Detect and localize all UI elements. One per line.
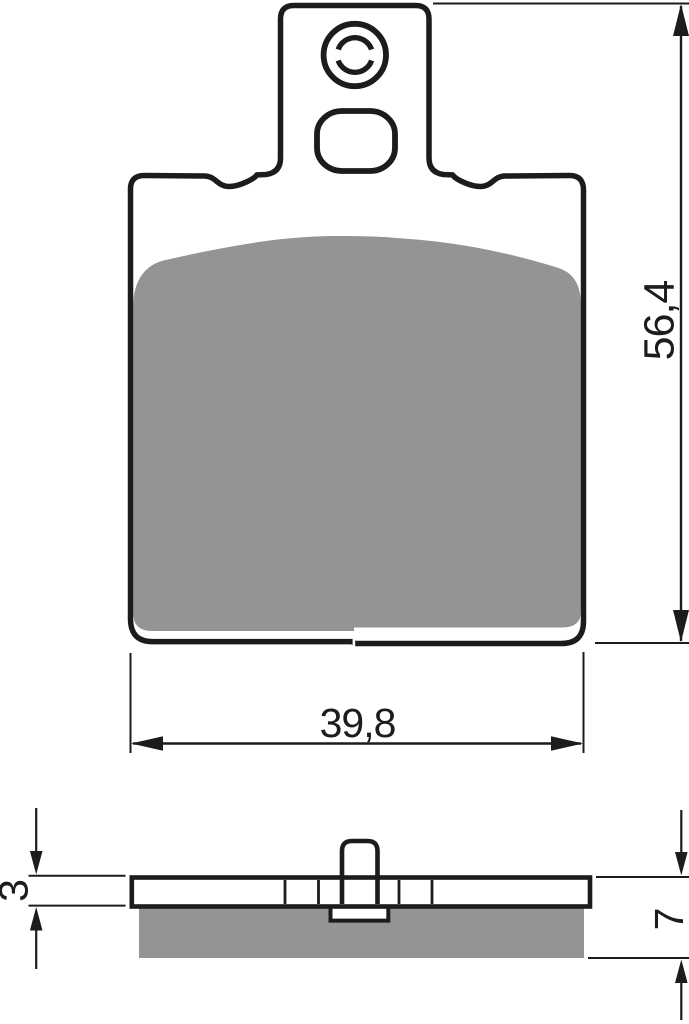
svg-text:39,8: 39,8 [320,700,396,746]
svg-text:3: 3 [0,879,37,902]
svg-text:7: 7 [646,908,689,931]
svg-text:56,4: 56,4 [636,281,684,361]
